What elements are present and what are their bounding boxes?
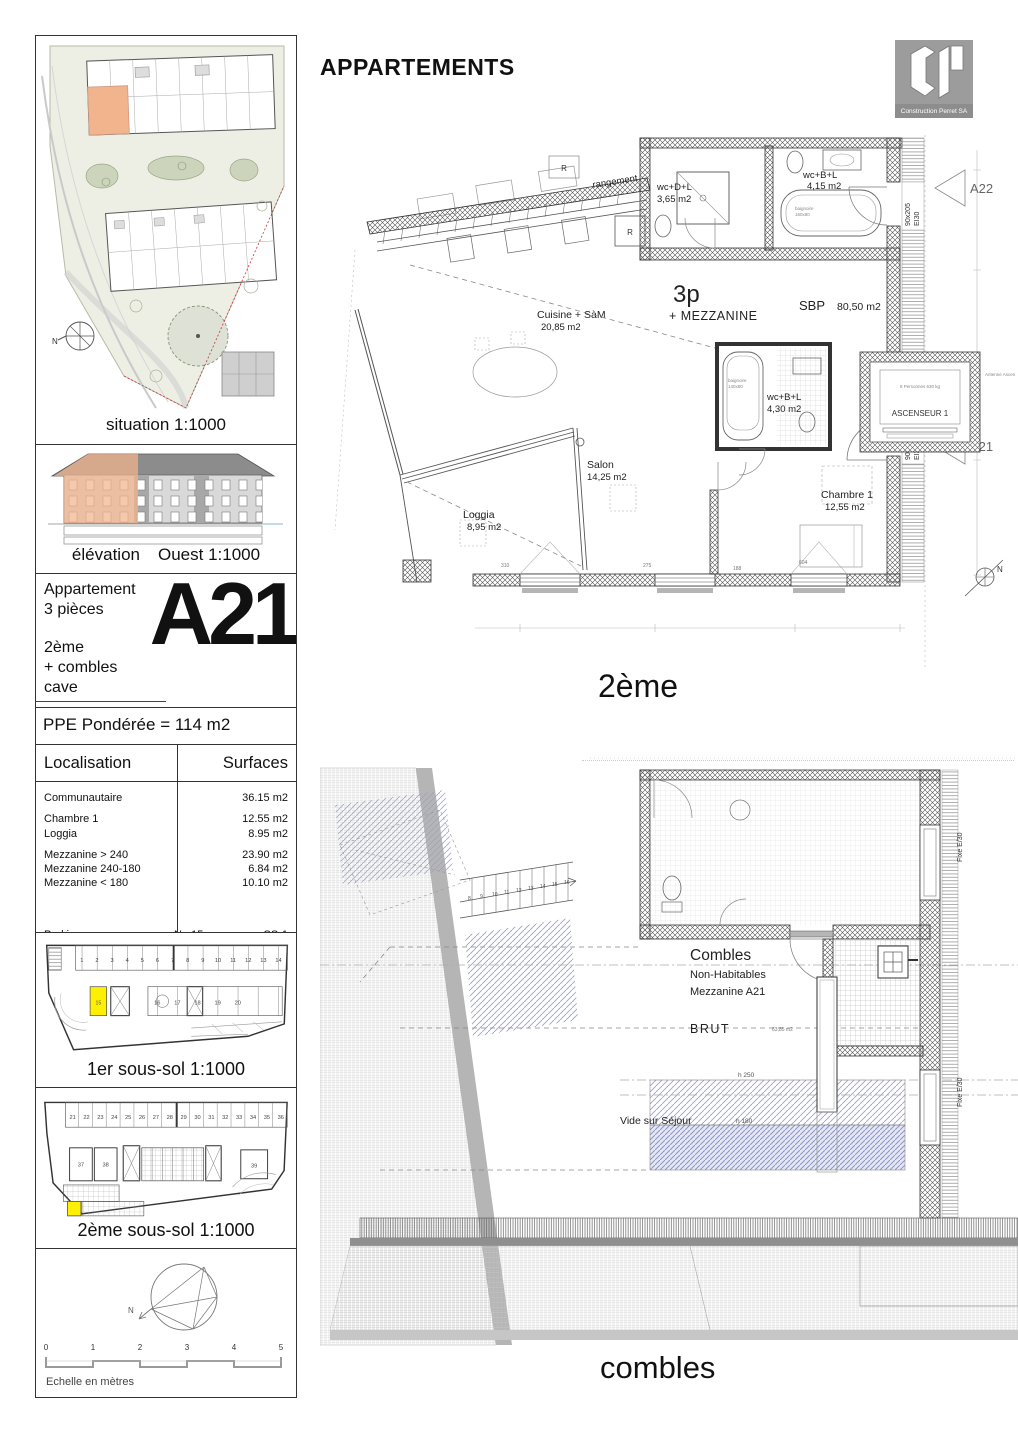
table-row: Mezzanine > 240 23.90 m2 xyxy=(36,848,296,862)
page-title: APPARTEMENTS xyxy=(320,54,515,81)
svg-text:Antenne Ascenseur (P) EI30: Antenne Ascenseur (P) EI30 xyxy=(985,372,1015,377)
svg-text:140x80: 140x80 xyxy=(728,384,743,389)
repeated-label: 0 xyxy=(44,1343,49,1352)
repeated-label: 24 xyxy=(111,1115,117,1121)
label-h180: h 180 xyxy=(736,1118,753,1125)
repeated-label: 12 xyxy=(245,958,251,964)
elevation-caption: élévation Ouest 1:1000 xyxy=(36,545,296,565)
compass-scale-panel: N 012345 Echelle en mètres xyxy=(36,1249,296,1393)
repeated-label: 21 xyxy=(70,1115,76,1121)
label-salon: Salon xyxy=(587,459,614,471)
room-chambre: Chambre 1 12,55 m2 xyxy=(710,462,873,574)
elevation-drawing xyxy=(36,445,295,545)
repeated-label: 19 xyxy=(214,1000,220,1006)
wall-top-band xyxy=(360,1218,1018,1238)
label-brut: BRUT xyxy=(690,1022,730,1036)
repeated-label: 9 xyxy=(201,958,204,964)
ss1-plan: 1234567891011121314 15 1617181920 xyxy=(36,933,295,1059)
repeated-label: 1 xyxy=(80,958,83,964)
plan-combles-caption: combles xyxy=(600,1350,715,1386)
repeated-label: 8 xyxy=(468,896,471,902)
col-surfaces: Surfaces xyxy=(184,754,296,773)
label-mezzanine: + MEZZANINE xyxy=(669,309,758,323)
repeated-label: 13 xyxy=(528,886,534,892)
ss2-caption: 2ème sous-sol 1:1000 xyxy=(36,1220,296,1241)
situation-panel: N situation 1:1000 xyxy=(36,36,296,445)
room-wc-b-l-1: baignoire 160x80 wc+B+L 4,15 m2 xyxy=(781,150,881,236)
repeated-label: 31 xyxy=(208,1115,214,1121)
label-combles: Combles xyxy=(690,947,751,964)
unit-cave: cave xyxy=(44,678,136,698)
svg-text:Fixe E/30: Fixe E/30 xyxy=(957,832,964,862)
svg-text:baignoire: baignoire xyxy=(728,378,747,383)
ss1-panel: 1234567891011121314 15 1617181920 1er so… xyxy=(36,933,296,1088)
compass-scale: N 012345 Echelle en mètres xyxy=(36,1249,295,1391)
unit-id-panel: Appartement 3 pièces 2ème + combles cave… xyxy=(36,574,296,708)
svg-text:14,25 m2: 14,25 m2 xyxy=(587,472,627,483)
sheet-sidebar: N situation 1:1000 élévation Ouest 1:100… xyxy=(35,35,297,1398)
repeated-label: 7 xyxy=(171,958,174,964)
repeated-label: 2 xyxy=(95,958,98,964)
svg-text:20,85 m2: 20,85 m2 xyxy=(541,322,581,333)
north-compass: N xyxy=(128,1264,217,1330)
repeated-label: 30 xyxy=(194,1115,200,1121)
table-row: Communautaire 36.15 m2 xyxy=(36,791,296,805)
situation-caption: situation 1:1000 xyxy=(36,415,296,435)
label-h250: h 250 xyxy=(738,1072,755,1079)
unit-type-line2: 3 pièces xyxy=(44,600,136,620)
ascenseur: 8 Personnes 630 kg ASCENSEUR 1 Antenne A… xyxy=(860,352,1015,452)
label-loggia: Loggia xyxy=(463,509,495,521)
ss2-plan: 21222324252627282930313233343536 37 38 3… xyxy=(36,1088,295,1220)
repeated-label: 35 xyxy=(264,1115,270,1121)
combles-tiled-room xyxy=(823,939,923,1056)
repeated-label: 32 xyxy=(222,1115,228,1121)
situation-highlight-a21 xyxy=(88,86,130,135)
roof-bottom xyxy=(330,1246,1018,1330)
surfaces-table: Localisation Surfaces Communautaire 36.1… xyxy=(36,745,296,933)
svg-text:160x80: 160x80 xyxy=(795,212,810,217)
unit-floor: 2ème xyxy=(44,638,136,658)
repeated-label: 15 xyxy=(552,882,558,888)
repeated-label: 11 xyxy=(504,890,509,896)
label-non-habitables: Non-Habitables xyxy=(690,969,766,981)
plan-2eme: R R rangement xyxy=(325,130,1015,675)
repeated-label: 9 xyxy=(480,894,483,900)
label-sbp-area: 80,50 m2 xyxy=(837,301,881,313)
repeated-label: 5 xyxy=(279,1343,284,1352)
table-row: Mezzanine < 180 10.10 m2 xyxy=(36,876,296,890)
plan-north-icon: N xyxy=(965,560,1003,596)
ss1-caption: 1er sous-sol 1:1000 xyxy=(36,1059,296,1080)
combles-stairs: 8910111213141516 xyxy=(460,862,576,918)
repeated-label: 14 xyxy=(275,958,281,964)
repeated-label: 8 xyxy=(186,958,189,964)
svg-text:wc+B+L: wc+B+L xyxy=(802,170,837,181)
door-label-a22: 90x205 EI30 xyxy=(902,182,924,230)
label-type-3p: 3p xyxy=(673,281,700,308)
repeated-label: 22 xyxy=(83,1115,89,1121)
svg-text:4,30 m2: 4,30 m2 xyxy=(767,404,801,415)
unit-arrow-a22 xyxy=(935,170,965,206)
svg-text:38: 38 xyxy=(103,1162,109,1168)
repeated-label: 10 xyxy=(215,958,221,964)
repeated-label: 13 xyxy=(260,958,266,964)
loggia-outline xyxy=(400,428,587,582)
ss2-highlighted-cave xyxy=(68,1201,81,1215)
svg-text:12,55 m2: 12,55 m2 xyxy=(825,502,865,513)
logo-company-name: Construction Perret SA xyxy=(901,108,968,115)
repeated-label: 16 xyxy=(564,880,570,886)
svg-text:N: N xyxy=(997,565,1003,574)
elevation-panel: élévation Ouest 1:1000 xyxy=(36,445,296,574)
appliance-r-top: R xyxy=(561,164,567,173)
zone-h180 xyxy=(650,1125,905,1170)
repeated-label: 3 xyxy=(111,958,114,964)
repeated-label: 2 xyxy=(138,1343,143,1352)
ppe-panel: PPE Pondérée = 114 m2 xyxy=(36,708,296,745)
label-brut-area: 63,85 m2 xyxy=(772,1027,793,1033)
svg-text:N: N xyxy=(52,337,58,346)
repeated-label: 10 xyxy=(492,892,498,898)
appliance-r-fridge: R xyxy=(627,228,633,237)
room-wc-d-l: wc+D+L 3,65 m2 xyxy=(655,146,773,250)
situation-north-arrow: N xyxy=(52,322,94,350)
svg-text:EI30: EI30 xyxy=(914,211,921,226)
svg-text:A22: A22 xyxy=(970,181,993,196)
col-localisation: Localisation xyxy=(36,754,184,773)
company-logo: Construction Perret SA xyxy=(895,40,973,118)
combles-wc-room xyxy=(650,780,920,925)
repeated-label: 3 xyxy=(185,1343,190,1352)
unit-type-line1: Appartement xyxy=(44,580,136,600)
repeated-label: 27 xyxy=(153,1115,159,1121)
label-cuisine: Cuisine + SàM xyxy=(537,309,606,321)
svg-text:baignoire: baignoire xyxy=(795,206,814,211)
repeated-label: 6 xyxy=(156,958,159,964)
svg-text:8 Personnes 630 kg: 8 Personnes 630 kg xyxy=(900,384,941,389)
repeated-label: 1 xyxy=(91,1343,96,1352)
repeated-label: 25 xyxy=(125,1115,131,1121)
repeated-label: 33 xyxy=(236,1115,242,1121)
svg-text:wc+B+L: wc+B+L xyxy=(766,392,801,403)
table-row: Mezzanine 240-180 6.84 m2 xyxy=(36,862,296,876)
mezzanine-zone-left xyxy=(465,918,578,1037)
repeated-label: 4 xyxy=(126,958,129,964)
svg-text:4,15 m2: 4,15 m2 xyxy=(807,181,841,192)
svg-text:604: 604 xyxy=(799,560,808,566)
repeated-label: 36 xyxy=(278,1115,284,1121)
svg-text:275: 275 xyxy=(643,563,652,569)
svg-text:39: 39 xyxy=(251,1163,257,1169)
svg-text:37: 37 xyxy=(78,1162,84,1168)
table-row: Loggia 8.95 m2 xyxy=(36,827,296,841)
label-mezzanine-a21: Mezzanine A21 xyxy=(690,986,765,998)
repeated-label: 4 xyxy=(232,1343,237,1352)
svg-text:3,65 m2: 3,65 m2 xyxy=(657,194,691,205)
svg-text:90x205: 90x205 xyxy=(905,203,912,226)
repeated-label: 17 xyxy=(174,1000,180,1006)
repeated-label: 14 xyxy=(540,884,546,890)
repeated-label: 26 xyxy=(139,1115,145,1121)
repeated-label: 12 xyxy=(516,888,522,894)
repeated-label: 34 xyxy=(250,1115,256,1121)
svg-text:8,95 m2: 8,95 m2 xyxy=(467,522,501,533)
unit-floor2: + combles xyxy=(44,658,136,678)
svg-text:wc+D+L: wc+D+L xyxy=(656,182,692,193)
repeated-label: 11 xyxy=(230,958,236,964)
label-sbp: SBP xyxy=(799,298,825,313)
svg-text:310: 310 xyxy=(501,563,510,569)
scale-bar: 012345 xyxy=(44,1343,284,1367)
repeated-label: 28 xyxy=(167,1115,173,1121)
svg-text:Fixe E/30: Fixe E/30 xyxy=(957,1077,964,1107)
facade-windows xyxy=(520,542,847,593)
unit-code: A21 xyxy=(150,574,296,658)
svg-text:188: 188 xyxy=(733,566,742,572)
mezzanine-zone-roof xyxy=(335,790,453,885)
repeated-label: 23 xyxy=(97,1115,103,1121)
plan-2eme-caption: 2ème xyxy=(598,668,678,705)
repeated-label: 29 xyxy=(181,1115,187,1121)
elevation-highlight-a21 xyxy=(54,454,138,523)
room-wc-b-l-2: baignoire 140x80 wc+B+L 4,30 m2 xyxy=(717,344,830,475)
ppe-value: PPE Pondérée = 114 m2 xyxy=(36,708,296,735)
scale-caption: Echelle en mètres xyxy=(46,1376,135,1388)
situation-map: N xyxy=(36,36,295,414)
repeated-label: 16 xyxy=(154,1000,160,1006)
ss2-panel: 21222324252627282930313233343536 37 38 3… xyxy=(36,1088,296,1249)
svg-text:N: N xyxy=(128,1306,134,1315)
repeated-label: 20 xyxy=(235,1000,241,1006)
label-vide-sur-sejour: Vide sur Séjour xyxy=(620,1115,692,1127)
label-chambre: Chambre 1 xyxy=(821,489,873,501)
repeated-label: 5 xyxy=(141,958,144,964)
svg-text:15: 15 xyxy=(95,1000,101,1006)
repeated-label: 18 xyxy=(194,1000,200,1006)
plan-combles: 8910111213141516 Fixe E/30 xyxy=(320,750,1018,1350)
svg-text:ASCENSEUR 1: ASCENSEUR 1 xyxy=(892,409,949,418)
table-row: Chambre 1 12.55 m2 xyxy=(36,812,296,826)
